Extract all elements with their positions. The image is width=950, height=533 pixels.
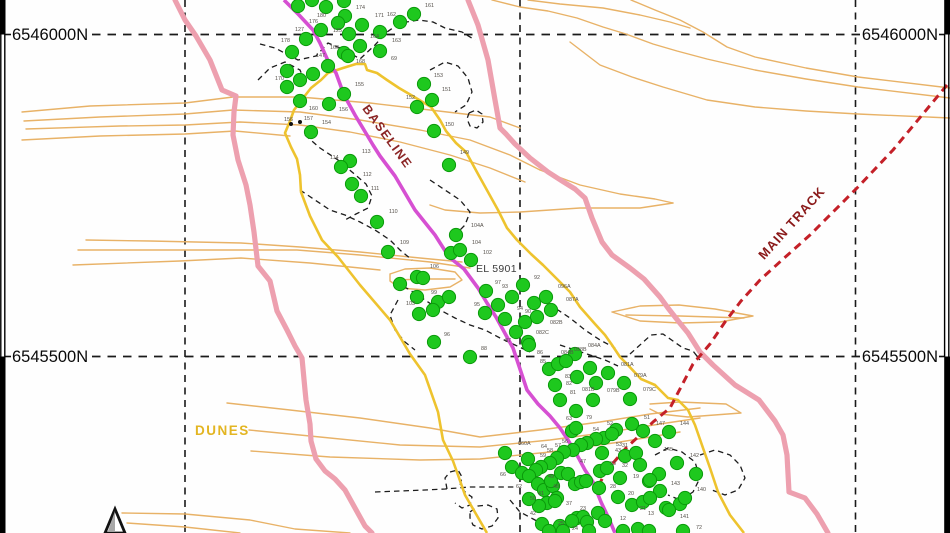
svg-text:149: 149 [460, 150, 469, 156]
svg-text:DUNES: DUNES [195, 423, 250, 438]
svg-text:86: 86 [537, 350, 543, 356]
svg-text:56: 56 [562, 439, 568, 445]
svg-text:152: 152 [406, 95, 415, 101]
svg-text:24: 24 [572, 526, 578, 532]
svg-text:112: 112 [363, 172, 372, 178]
svg-text:145: 145 [664, 447, 673, 453]
svg-text:97: 97 [495, 280, 501, 286]
svg-text:47: 47 [580, 459, 586, 465]
svg-text:081A: 081A [621, 362, 634, 368]
svg-text:20: 20 [628, 491, 634, 497]
svg-text:90: 90 [525, 309, 531, 315]
svg-text:37: 37 [566, 501, 572, 507]
svg-text:93: 93 [502, 284, 508, 290]
svg-text:85: 85 [540, 359, 546, 365]
svg-text:174: 174 [356, 5, 365, 11]
svg-text:147: 147 [656, 421, 665, 427]
svg-text:6546000N: 6546000N [862, 26, 938, 44]
svg-text:58: 58 [547, 448, 553, 454]
svg-text:155: 155 [355, 82, 364, 88]
svg-text:110: 110 [389, 209, 398, 215]
svg-text:060A: 060A [518, 441, 531, 447]
svg-text:66: 66 [500, 472, 506, 478]
svg-text:81: 81 [570, 390, 576, 396]
svg-text:142: 142 [690, 453, 699, 459]
svg-text:99: 99 [431, 290, 437, 296]
svg-text:28: 28 [610, 484, 616, 490]
svg-text:51: 51 [644, 415, 650, 421]
svg-text:164: 164 [370, 34, 379, 40]
svg-text:94: 94 [517, 306, 523, 312]
svg-text:50: 50 [530, 496, 536, 502]
svg-text:62: 62 [516, 484, 522, 490]
svg-text:31: 31 [622, 443, 628, 449]
svg-text:64: 64 [541, 444, 547, 450]
svg-text:178: 178 [281, 38, 290, 44]
svg-text:140: 140 [697, 487, 706, 493]
svg-text:106: 106 [430, 264, 439, 270]
svg-text:6545500N: 6545500N [12, 348, 88, 366]
svg-text:153: 153 [434, 73, 443, 79]
svg-text:114: 114 [330, 155, 339, 161]
svg-text:170: 170 [275, 76, 284, 82]
svg-text:143: 143 [671, 481, 680, 487]
svg-text:79: 79 [586, 415, 592, 421]
svg-text:171: 171 [375, 13, 384, 19]
svg-text:88: 88 [481, 346, 487, 352]
svg-text:154: 154 [322, 120, 331, 126]
svg-text:079B: 079B [607, 388, 620, 394]
svg-text:156: 156 [339, 107, 348, 113]
svg-text:111: 111 [371, 186, 379, 192]
svg-text:49: 49 [548, 474, 554, 480]
svg-text:163: 163 [392, 38, 401, 44]
svg-text:6546000N: 6546000N [12, 26, 88, 44]
svg-text:12: 12 [620, 516, 626, 522]
svg-text:57: 57 [555, 443, 561, 449]
svg-text:43: 43 [615, 448, 621, 454]
svg-text:127: 127 [295, 27, 304, 33]
svg-text:32: 32 [622, 463, 628, 469]
svg-text:23: 23 [580, 506, 586, 512]
svg-text:125: 125 [333, 28, 342, 34]
svg-text:084B: 084B [561, 350, 574, 356]
svg-text:144: 144 [680, 421, 689, 427]
svg-text:082B: 082B [550, 320, 563, 326]
svg-text:104: 104 [472, 240, 481, 246]
svg-text:150: 150 [445, 122, 454, 128]
svg-text:95: 95 [474, 302, 480, 308]
svg-text:EL 5901: EL 5901 [476, 263, 517, 275]
svg-text:109: 109 [400, 240, 409, 246]
svg-text:180: 180 [317, 13, 326, 19]
svg-text:72: 72 [696, 525, 702, 531]
svg-text:162: 162 [387, 12, 396, 18]
svg-text:59: 59 [540, 453, 546, 459]
svg-text:69: 69 [391, 56, 397, 62]
svg-text:96: 96 [444, 332, 450, 338]
svg-text:87: 87 [505, 338, 511, 344]
svg-text:084A: 084A [588, 343, 601, 349]
svg-text:081B: 081B [582, 387, 595, 393]
svg-text:82: 82 [566, 381, 572, 387]
svg-text:102: 102 [483, 250, 492, 256]
svg-text:54: 54 [593, 427, 599, 433]
svg-text:166: 166 [330, 45, 339, 51]
svg-text:168: 168 [356, 59, 365, 65]
svg-text:096A: 096A [558, 284, 571, 290]
svg-text:92: 92 [534, 275, 540, 281]
svg-text:13: 13 [648, 511, 654, 517]
svg-text:42: 42 [530, 511, 536, 517]
svg-text:151: 151 [442, 87, 451, 93]
svg-text:079A: 079A [634, 373, 647, 379]
svg-text:141: 141 [680, 514, 689, 520]
svg-text:104A: 104A [471, 223, 484, 229]
svg-text:113: 113 [362, 149, 371, 155]
svg-text:21: 21 [640, 506, 646, 512]
svg-text:147: 147 [316, 53, 325, 59]
svg-text:83: 83 [565, 374, 571, 380]
svg-text:103: 103 [406, 301, 415, 307]
svg-text:63: 63 [566, 416, 572, 422]
svg-text:098B: 098B [574, 347, 587, 353]
svg-text:19: 19 [633, 474, 639, 480]
svg-text:176: 176 [309, 19, 318, 25]
svg-text:087A: 087A [566, 297, 579, 303]
svg-text:25: 25 [558, 521, 564, 527]
svg-text:33: 33 [610, 461, 616, 467]
svg-text:156: 156 [284, 117, 293, 123]
svg-text:157: 157 [304, 116, 313, 122]
svg-text:48: 48 [553, 484, 559, 490]
svg-text:082C: 082C [536, 330, 549, 336]
svg-text:160: 160 [309, 106, 318, 112]
svg-text:6545500N: 6545500N [862, 348, 938, 366]
svg-text:079C: 079C [643, 387, 656, 393]
svg-text:52: 52 [607, 421, 613, 427]
svg-text:41: 41 [538, 491, 544, 497]
svg-text:161: 161 [425, 3, 434, 9]
